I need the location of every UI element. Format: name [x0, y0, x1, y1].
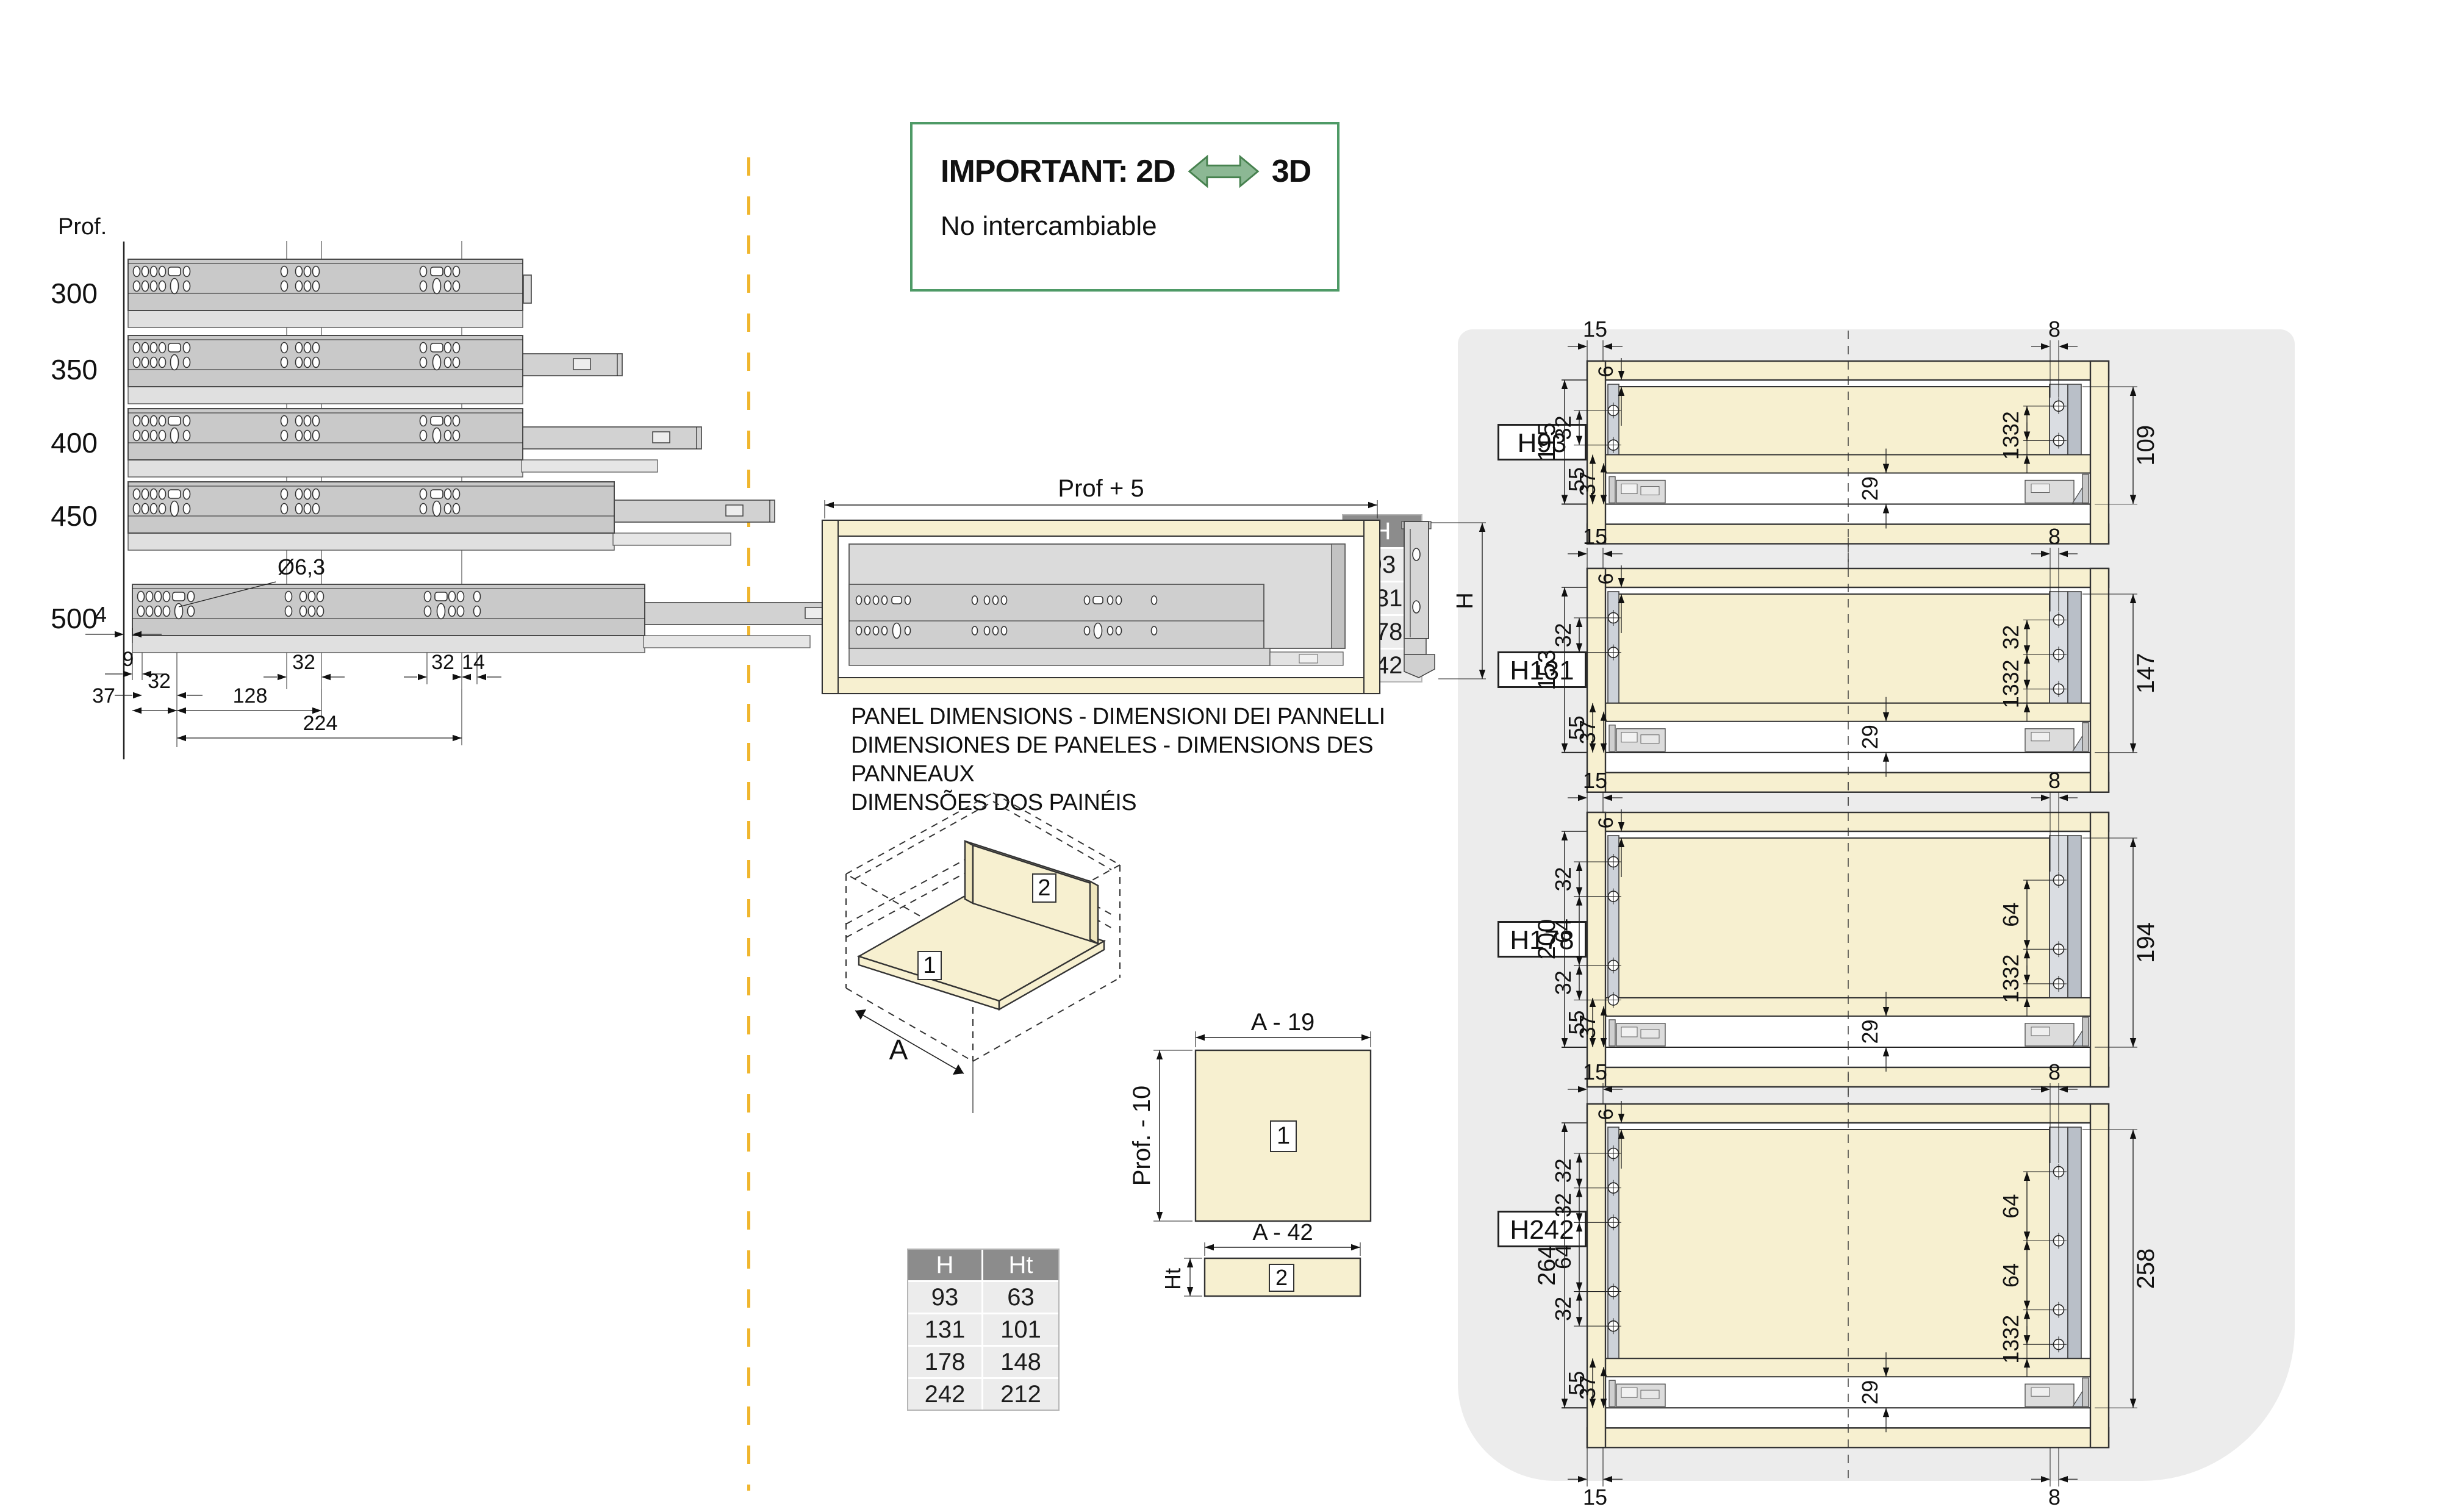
notice-title-3d: 3D [1272, 153, 1311, 190]
svg-text:29: 29 [1857, 1019, 1882, 1044]
svg-text:147: 147 [2132, 653, 2159, 694]
svg-text:8: 8 [2048, 317, 2060, 342]
ht-table-cell: 131 [908, 1313, 983, 1345]
ht-table-cell: 148 [983, 1345, 1058, 1377]
ht-table-header: H [908, 1250, 983, 1280]
notice-subtitle: No intercambiable [941, 211, 1337, 242]
svg-text:1: 1 [1277, 1122, 1290, 1149]
svg-text:9: 9 [123, 648, 134, 671]
svg-text:32: 32 [292, 651, 315, 674]
svg-text:A - 19: A - 19 [1251, 1009, 1315, 1036]
svg-text:6: 6 [1594, 817, 1618, 829]
svg-text:1: 1 [923, 953, 936, 978]
svg-text:8: 8 [2048, 768, 2060, 793]
svg-text:Ht: Ht [1160, 1268, 1185, 1290]
svg-text:15: 15 [1583, 317, 1607, 342]
svg-text:2: 2 [1275, 1265, 1288, 1290]
panel2-drawing: A - 42Ht2 [1132, 1223, 1461, 1327]
svg-text:64: 64 [1998, 1194, 2023, 1219]
svg-text:32: 32 [1551, 970, 1576, 995]
svg-text:A - 42: A - 42 [1252, 1220, 1313, 1245]
svg-text:258: 258 [2132, 1249, 2159, 1289]
svg-text:200: 200 [1533, 919, 1560, 960]
svg-text:224: 224 [303, 712, 338, 735]
svg-text:32: 32 [1551, 867, 1576, 891]
heading-line-2: DIMENSIONES DE PANELES - DIMENSIONS DES … [851, 731, 1485, 789]
ht-table-cell: 93 [908, 1280, 983, 1313]
svg-text:37: 37 [1575, 471, 1600, 496]
svg-text:32: 32 [1551, 1193, 1576, 1217]
svg-text:37: 37 [92, 684, 115, 708]
ht-table-cell: 101 [983, 1313, 1058, 1345]
svg-text:8: 8 [2048, 1059, 2060, 1084]
svg-text:64: 64 [1998, 1263, 2023, 1288]
ht-table-cell: 178 [908, 1345, 983, 1377]
svg-text:37: 37 [1575, 720, 1600, 744]
svg-text:13: 13 [1998, 435, 2023, 460]
svg-text:13: 13 [1998, 1339, 2023, 1364]
svg-text:32: 32 [1551, 1158, 1576, 1183]
svg-text:32: 32 [1998, 411, 2023, 435]
ht-table-header: Ht [983, 1250, 1058, 1280]
svg-text:15: 15 [1583, 524, 1607, 549]
svg-text:Prof + 5: Prof + 5 [1058, 475, 1144, 502]
svg-text:115: 115 [1533, 423, 1560, 462]
svg-text:6: 6 [1594, 366, 1618, 378]
cross-section-h242: 32326432646432136264553729258158158 [1459, 1046, 2264, 1511]
notice-title-2d: IMPORTANT: 2D [941, 153, 1175, 190]
svg-text:153: 153 [1533, 650, 1560, 690]
important-notice: IMPORTANT: 2D 3D No intercambiable [910, 122, 1340, 292]
svg-text:2: 2 [1038, 875, 1050, 901]
svg-text:32: 32 [1998, 625, 2023, 650]
svg-text:4: 4 [95, 602, 107, 627]
svg-text:Ø6,3: Ø6,3 [278, 554, 325, 579]
ht-table-cell: 212 [983, 1377, 1058, 1410]
svg-text:6: 6 [1594, 573, 1618, 585]
svg-text:32: 32 [431, 651, 454, 674]
svg-text:Prof. - 10: Prof. - 10 [1128, 1086, 1155, 1186]
svg-text:6: 6 [1594, 1109, 1618, 1120]
svg-text:32: 32 [1998, 659, 2023, 684]
svg-text:13: 13 [1998, 684, 2023, 708]
svg-text:194: 194 [2132, 922, 2159, 963]
svg-text:450: 450 [51, 500, 98, 532]
h-ht-table: HHt9363131101178148242212 [907, 1249, 1060, 1411]
svg-text:29: 29 [1857, 1380, 1882, 1405]
svg-text:15: 15 [1583, 768, 1607, 793]
svg-text:264: 264 [1533, 1245, 1560, 1286]
svg-text:37: 37 [1575, 1375, 1600, 1400]
rail-lengths-diagram: Prof.3003504004505004Ø6,3932323214371282… [37, 207, 866, 762]
svg-text:37: 37 [1575, 1014, 1600, 1039]
svg-text:400: 400 [51, 427, 98, 459]
svg-text:14: 14 [462, 651, 485, 674]
svg-text:29: 29 [1857, 725, 1882, 749]
svg-text:15: 15 [1583, 1485, 1607, 1510]
svg-text:32: 32 [1551, 1297, 1576, 1321]
svg-text:29: 29 [1857, 476, 1882, 501]
svg-text:64: 64 [1998, 903, 2023, 927]
svg-text:128: 128 [233, 684, 268, 708]
svg-text:13: 13 [1998, 978, 2023, 1003]
svg-text:32: 32 [1998, 955, 2023, 979]
svg-text:32: 32 [1998, 1315, 2023, 1339]
svg-text:300: 300 [51, 278, 98, 309]
svg-text:A: A [889, 1034, 908, 1066]
page-canvas: IMPORTANT: 2D 3D No intercambiable PANEL… [0, 0, 2446, 1512]
svg-text:500: 500 [51, 603, 98, 634]
svg-text:15: 15 [1583, 1059, 1607, 1084]
svg-text:32: 32 [1551, 623, 1576, 647]
ht-table-cell: 242 [908, 1377, 983, 1410]
svg-text:109: 109 [2132, 425, 2159, 466]
notice-title-row: IMPORTANT: 2D 3D [941, 152, 1337, 190]
svg-text:350: 350 [51, 354, 98, 385]
svg-text:8: 8 [2048, 524, 2060, 549]
svg-text:32: 32 [148, 670, 171, 693]
svg-text:Prof.: Prof. [58, 214, 107, 240]
svg-text:8: 8 [2048, 1485, 2060, 1510]
ht-table-cell: 63 [983, 1280, 1058, 1313]
double-arrow-icon [1188, 152, 1260, 190]
